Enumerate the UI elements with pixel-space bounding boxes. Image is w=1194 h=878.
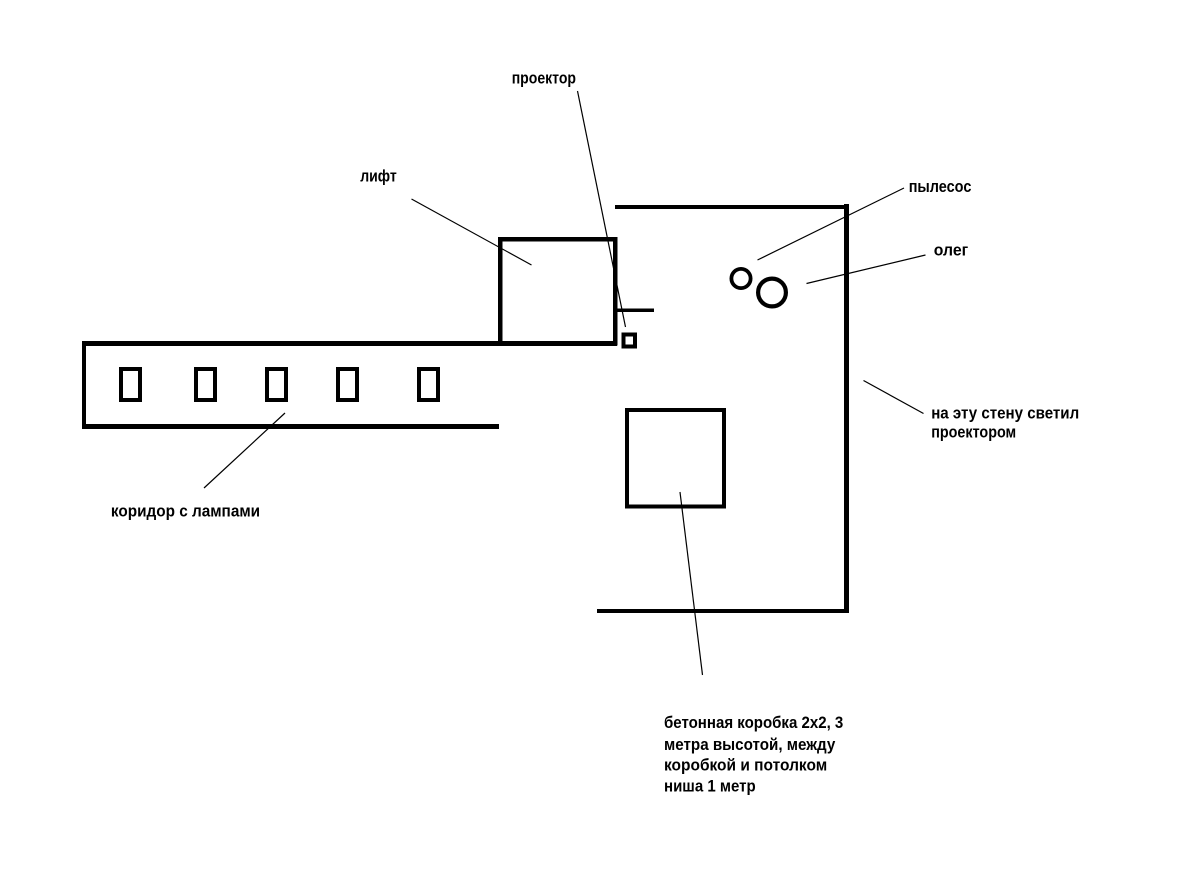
svg-text:коридор с лампами: коридор с лампами <box>111 502 260 521</box>
svg-text:проектор: проектор <box>512 68 576 87</box>
svg-text:бетонная коробка 2х2, 3: бетонная коробка 2х2, 3 <box>664 713 843 732</box>
svg-text:пылесос: пылесос <box>909 177 972 196</box>
svg-text:проектором: проектором <box>931 422 1016 441</box>
svg-text:ниша 1 метр: ниша 1 метр <box>664 777 756 796</box>
svg-text:олег: олег <box>934 241 968 260</box>
svg-text:коробкой и потолком: коробкой и потолком <box>664 756 827 775</box>
svg-text:лифт: лифт <box>360 167 397 186</box>
svg-text:метра высотой, между: метра высотой, между <box>664 735 836 754</box>
svg-text:на эту стену светил: на эту стену светил <box>931 403 1079 422</box>
